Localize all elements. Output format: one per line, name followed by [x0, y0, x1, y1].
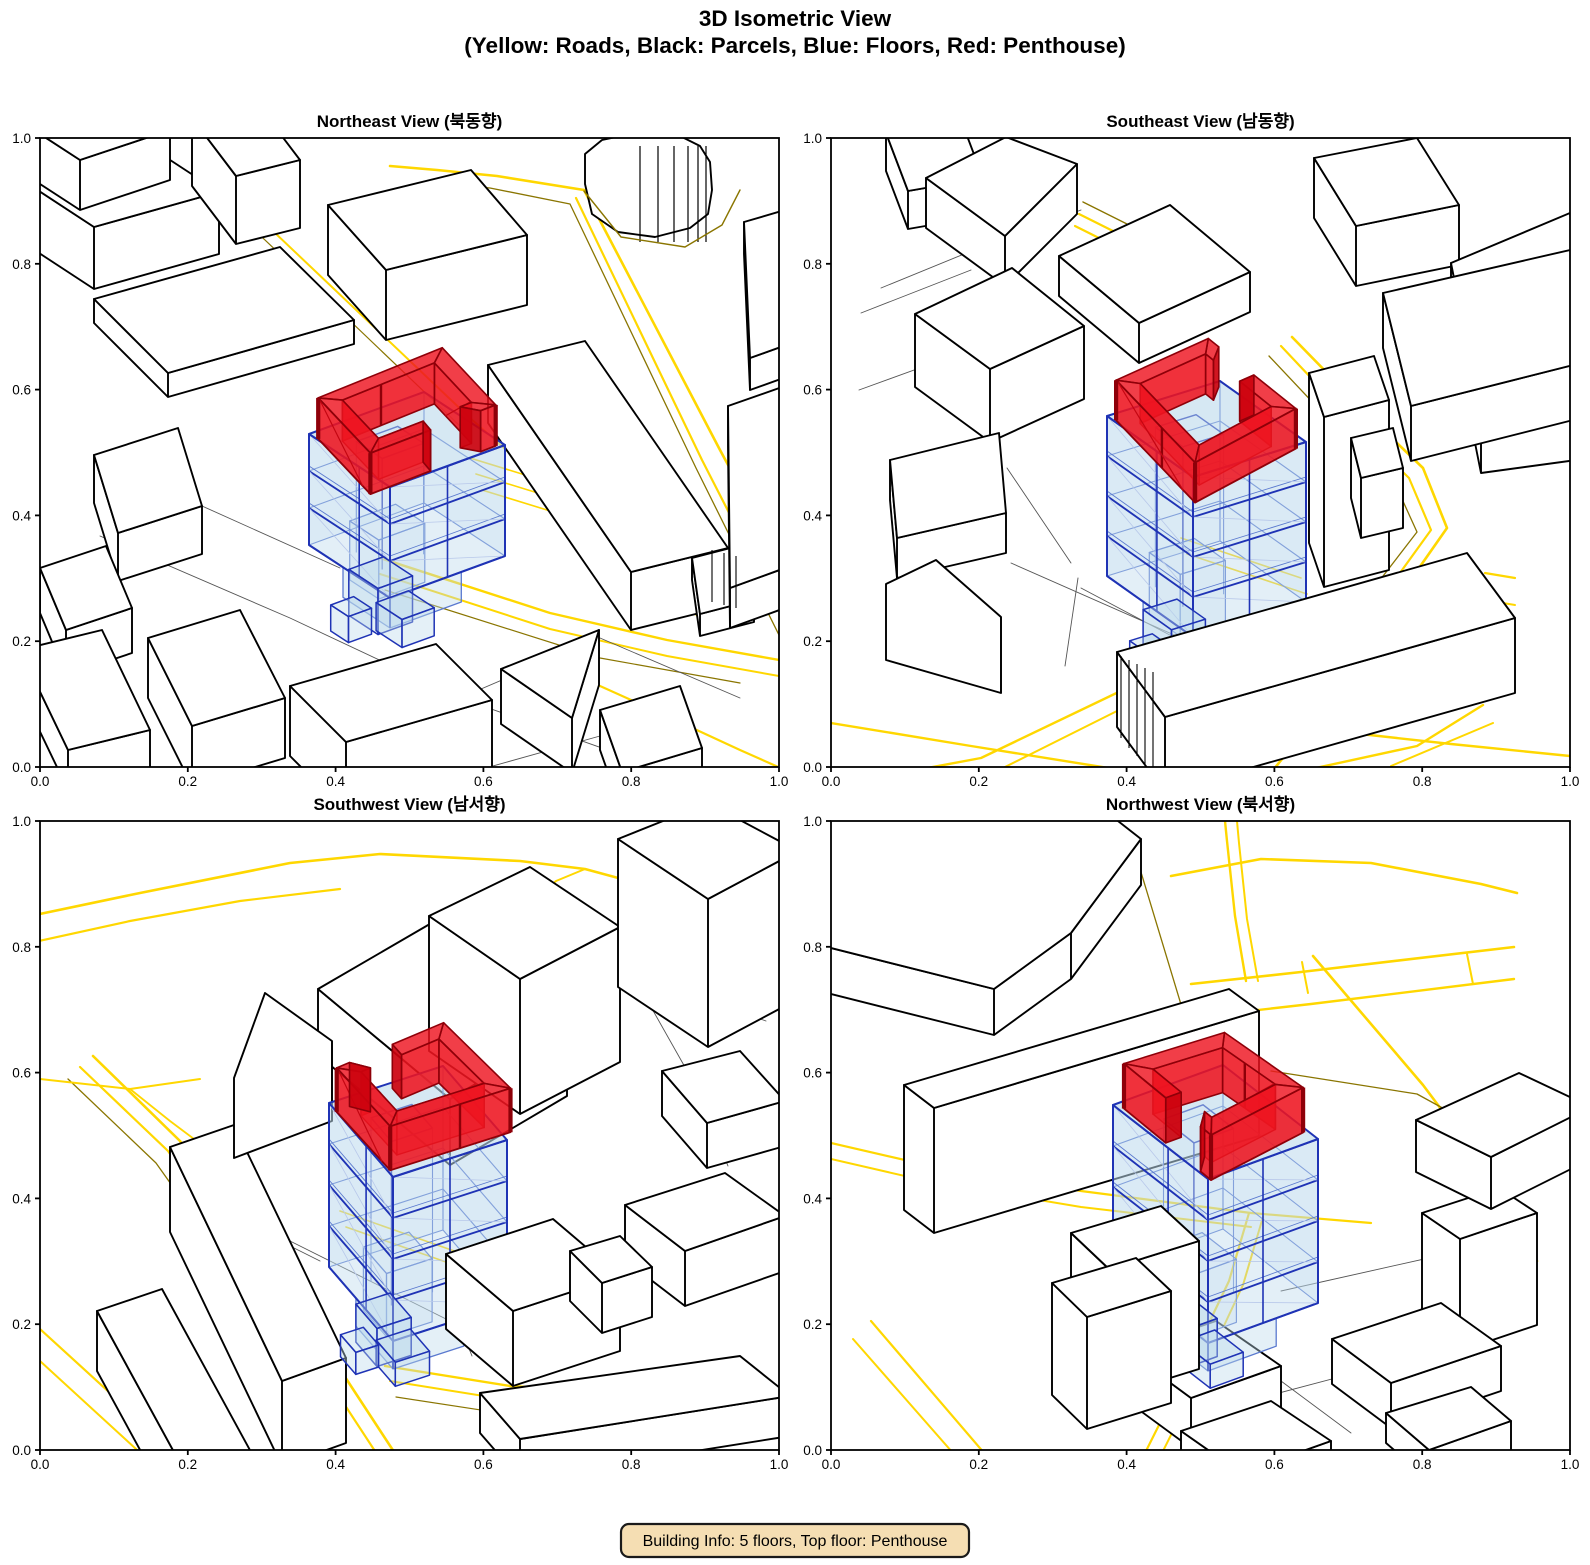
svg-text:0.2: 0.2 — [969, 1457, 988, 1472]
svg-text:1.0: 1.0 — [1561, 1457, 1580, 1472]
svg-text:0.6: 0.6 — [474, 774, 493, 789]
svg-text:0.8: 0.8 — [622, 1457, 641, 1472]
svg-text:1.0: 1.0 — [803, 131, 822, 146]
svg-text:Northwest View (북서향): Northwest View (북서향) — [1106, 794, 1295, 814]
svg-text:0.0: 0.0 — [803, 760, 822, 775]
svg-text:0.6: 0.6 — [803, 1066, 822, 1081]
svg-text:0.4: 0.4 — [12, 508, 31, 523]
svg-text:0.4: 0.4 — [1117, 774, 1136, 789]
svg-text:0.8: 0.8 — [803, 257, 822, 272]
svg-text:1.0: 1.0 — [770, 1457, 789, 1472]
svg-text:0.0: 0.0 — [31, 1457, 50, 1472]
svg-text:0.4: 0.4 — [12, 1191, 31, 1206]
svg-text:0.4: 0.4 — [1117, 1457, 1136, 1472]
svg-text:0.8: 0.8 — [1413, 1457, 1432, 1472]
svg-text:0.4: 0.4 — [803, 1191, 822, 1206]
svg-text:3D Isometric View: 3D Isometric View — [699, 6, 892, 31]
svg-text:Building Info: 5 floors, Top f: Building Info: 5 floors, Top floor: Pent… — [643, 1533, 948, 1550]
svg-text:0.8: 0.8 — [12, 940, 31, 955]
svg-text:0.6: 0.6 — [12, 1066, 31, 1081]
svg-text:Southeast View (남동향): Southeast View (남동향) — [1106, 111, 1294, 131]
svg-text:0.8: 0.8 — [12, 257, 31, 272]
svg-text:0.2: 0.2 — [178, 774, 197, 789]
svg-text:0.0: 0.0 — [803, 1443, 822, 1458]
svg-text:0.6: 0.6 — [12, 383, 31, 398]
svg-text:0.8: 0.8 — [803, 940, 822, 955]
svg-text:0.2: 0.2 — [178, 1457, 197, 1472]
svg-text:0.2: 0.2 — [12, 1317, 31, 1332]
svg-text:Northeast View (북동향): Northeast View (북동향) — [317, 111, 502, 131]
svg-text:1.0: 1.0 — [770, 774, 789, 789]
svg-text:0.6: 0.6 — [1265, 774, 1284, 789]
svg-text:0.6: 0.6 — [1265, 1457, 1284, 1472]
svg-text:0.0: 0.0 — [822, 774, 841, 789]
svg-text:0.4: 0.4 — [803, 508, 822, 523]
svg-text:0.4: 0.4 — [326, 1457, 345, 1472]
svg-text:1.0: 1.0 — [1561, 774, 1580, 789]
svg-text:1.0: 1.0 — [12, 814, 31, 829]
svg-text:0.6: 0.6 — [803, 383, 822, 398]
svg-text:0.2: 0.2 — [969, 774, 988, 789]
svg-text:0.0: 0.0 — [31, 774, 50, 789]
svg-text:0.8: 0.8 — [622, 774, 641, 789]
svg-text:0.2: 0.2 — [803, 634, 822, 649]
svg-text:0.6: 0.6 — [474, 1457, 493, 1472]
svg-text:0.4: 0.4 — [326, 774, 345, 789]
svg-text:(Yellow: Roads, Black: Parcels: (Yellow: Roads, Black: Parcels, Blue: Fl… — [464, 33, 1125, 58]
svg-text:1.0: 1.0 — [803, 814, 822, 829]
svg-text:0.0: 0.0 — [12, 1443, 31, 1458]
svg-text:0.8: 0.8 — [1413, 774, 1432, 789]
svg-text:0.0: 0.0 — [12, 760, 31, 775]
svg-text:0.0: 0.0 — [822, 1457, 841, 1472]
svg-text:Southwest View (남서향): Southwest View (남서향) — [313, 794, 505, 814]
svg-text:1.0: 1.0 — [12, 131, 31, 146]
svg-text:0.2: 0.2 — [803, 1317, 822, 1332]
svg-text:0.2: 0.2 — [12, 634, 31, 649]
